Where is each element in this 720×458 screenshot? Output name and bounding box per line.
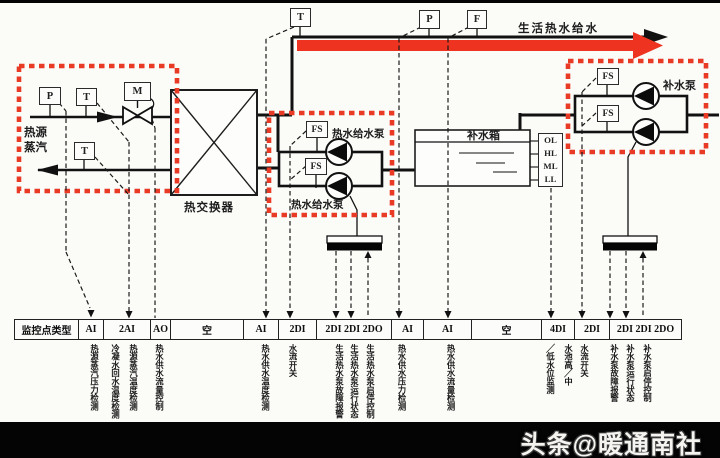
- sensor-tag: P: [47, 91, 53, 102]
- steam-source-label-line1: 热源: [24, 126, 47, 141]
- heat-exchanger-label: 热交换器: [184, 199, 234, 215]
- tank-level-switch-box: OL HL ML LL: [538, 133, 563, 187]
- sensor-tag: FS: [310, 162, 321, 172]
- monitor-point-desc: 热源蒸汽温度检测: [125, 344, 137, 422]
- top-frame-bar: [0, 0, 720, 3]
- monitor-point-desc: 补水泵故障报警: [606, 344, 618, 422]
- table-row-header: 监控点类型: [15, 320, 78, 339]
- table-col-type: AI: [243, 320, 278, 339]
- monitor-point-desc: 热水供水流量控制: [151, 344, 163, 422]
- sensor-tag: FS: [311, 125, 322, 135]
- sensor-tag: FS: [602, 109, 613, 119]
- level-tag-ml: ML: [543, 162, 557, 171]
- level-tag-hl: HL: [544, 149, 557, 158]
- monitor-point-desc: 水池高╱中: [560, 344, 572, 422]
- monitor-point-desc: 热水供水流量检测: [442, 344, 454, 422]
- actuator-tag: M: [133, 86, 143, 97]
- monitor-point-desc: 水流开关: [576, 344, 588, 422]
- signal-arrowheads: [88, 251, 647, 319]
- steam-pipes: [30, 117, 172, 170]
- table-col-type: 2AI: [103, 320, 150, 339]
- tank-label: 补水箱: [467, 127, 500, 143]
- sensor-tag: FS: [602, 72, 613, 82]
- sensor-tag: T: [83, 92, 90, 103]
- monitor-point-desc: 热水供水压力检测: [393, 344, 405, 422]
- hot-water-pump-group: [279, 139, 382, 236]
- sensor-tag: T: [297, 12, 304, 23]
- makeup-pump-group: [575, 83, 687, 236]
- monitor-point-desc: 生活热水泵故障报警: [331, 344, 343, 422]
- table-col-type: 2DI 2DI 2DO: [609, 320, 681, 339]
- monitor-point-desc: 补水泵启停控制: [639, 344, 651, 422]
- level-tag-ll: LL: [545, 175, 557, 184]
- hot-water-pump-label-top: 热水给水泵: [332, 126, 385, 141]
- table-col-type: 2DI: [278, 320, 316, 339]
- hw-flow-switch-2: FS: [305, 158, 327, 175]
- terminal-bar-hot-water: [327, 236, 382, 251]
- supply-line-label: 生活热水给水: [518, 20, 599, 36]
- steam-source-label-line2: 蒸汽: [24, 141, 47, 156]
- supply-flow-sensor: F: [467, 10, 487, 29]
- makeup-flow-switch-2: FS: [597, 105, 619, 122]
- monitor-point-desc: 生活热水泵启停控制: [362, 344, 374, 422]
- control-valve-symbol: [123, 97, 154, 124]
- heat-exchanger-symbol: [171, 90, 257, 195]
- monitor-point-desc: 水流开关: [284, 344, 296, 422]
- supply-temp-sensor: T: [290, 8, 311, 27]
- monitor-point-desc: 热源蒸汽压力检测: [86, 344, 98, 422]
- makeup-pump-label: 补水泵: [663, 77, 696, 93]
- valve-actuator: M: [124, 82, 151, 101]
- monitor-point-desc: 生活热水泵运行状态: [346, 344, 358, 422]
- table-col-type: AO: [150, 320, 170, 339]
- sensor-tag: P: [426, 14, 432, 25]
- sensor-tag: T: [81, 146, 88, 157]
- table-col-type: AI: [423, 320, 471, 339]
- return-temp-sensor: T: [74, 142, 95, 160]
- table-col-type: 2DI: [574, 320, 609, 339]
- supply-pressure-sensor: P: [419, 10, 440, 29]
- steam-pressure-sensor: P: [39, 87, 61, 105]
- hw-flow-switch-1: FS: [306, 121, 328, 138]
- monitor-point-desc: 冷凝水回水温度检测: [107, 344, 119, 422]
- red-arrow-body: [297, 40, 633, 51]
- table-col-type: AI: [391, 320, 423, 339]
- makeup-flow-switch-1: FS: [597, 68, 619, 85]
- watermark: 头条@暖通南社: [521, 425, 702, 458]
- table-col-type: AI: [78, 320, 103, 339]
- table-col-type: 2DI 2DI 2DO: [316, 320, 391, 339]
- level-tag-ol: OL: [544, 136, 557, 145]
- monitor-point-desc: ╱低水位监测: [542, 344, 554, 422]
- sensor-tag: F: [474, 14, 480, 25]
- steam-flow-arrow: [97, 112, 118, 123]
- steam-source-label: 热源 蒸汽: [24, 126, 47, 156]
- terminal-bar-makeup: [603, 236, 657, 251]
- table-col-type: 4DI: [541, 320, 574, 339]
- table-col-type: 空: [170, 320, 243, 339]
- monitor-point-desc: 热水供水温度检测: [257, 344, 269, 422]
- return-flow-arrow: [37, 165, 58, 176]
- hot-water-pump-label-bottom: 热水给水泵: [291, 197, 344, 212]
- monitoring-point-table: 监控点类型 AI 2AI AO 空 AI 2DI 2DI 2DI 2DO AI …: [14, 319, 682, 340]
- table-col-type: 空: [471, 320, 541, 339]
- monitor-point-desc: 补水泵运行状态: [622, 344, 634, 422]
- steam-temp-sensor: T: [76, 88, 97, 106]
- schematic-page: T P F P T M T FS FS FS FS 生活热水给水 热源 蒸汽 热…: [0, 0, 720, 458]
